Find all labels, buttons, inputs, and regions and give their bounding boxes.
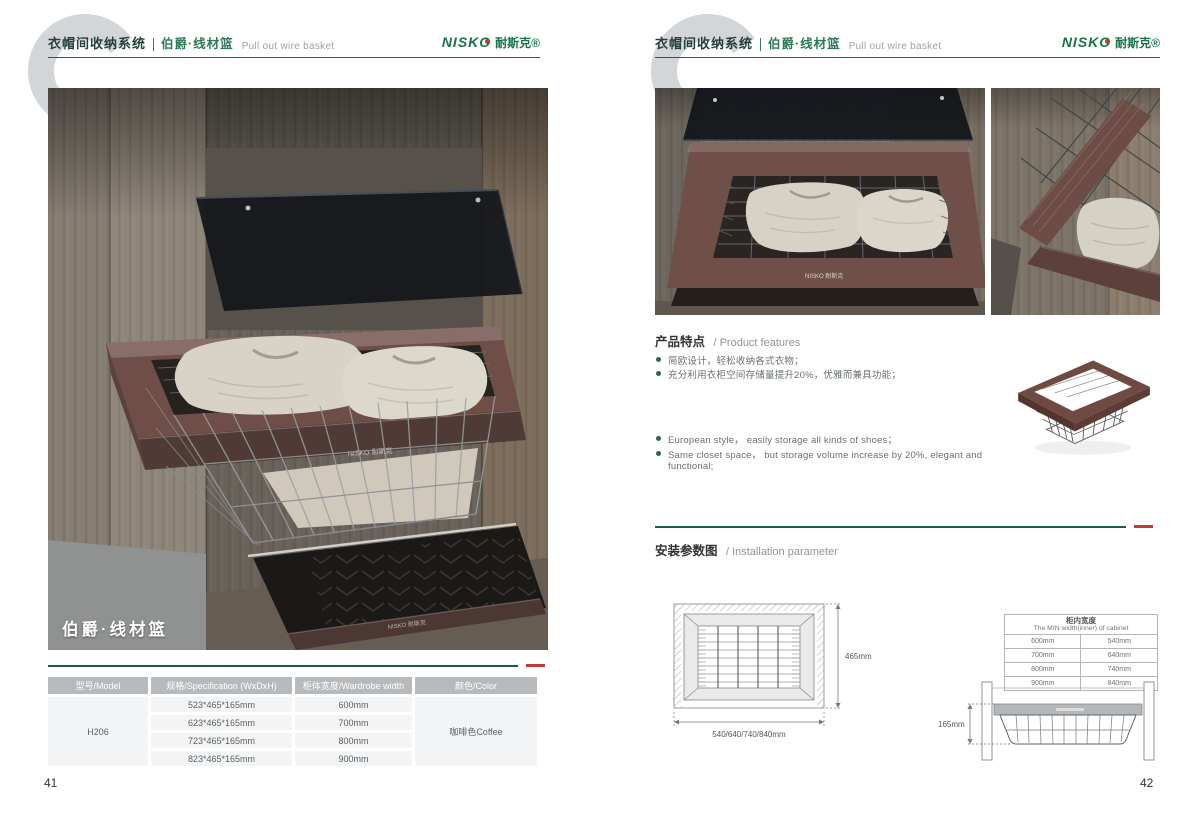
topview-width-label: 540/640/740/840mm bbox=[712, 730, 786, 739]
brand-logo: NISKO 耐斯克® bbox=[442, 34, 540, 51]
feature-text: 充分利用衣柜空间存储量提升20%，优雅而兼具功能； bbox=[668, 367, 901, 381]
cabinet-cell: 600mm bbox=[1005, 635, 1081, 649]
feature-bullet-zh-2: 充分利用衣柜空间存储量提升20%，优雅而兼具功能； bbox=[656, 367, 996, 381]
features-title-zh: 产品特点 bbox=[655, 335, 705, 349]
catalog-spread: 衣帽间收纳系统 伯爵·线材篮 Pull out wire basket NISK… bbox=[0, 0, 1200, 820]
spec-cell: 723*465*165mm bbox=[151, 733, 292, 748]
feature-bullet-zh-1: 简欧设计，轻松收纳各式衣物； bbox=[656, 353, 996, 367]
detail-photo-top: NISKO 耐斯克 bbox=[655, 88, 985, 315]
frontview-height-label: 165mm bbox=[938, 720, 965, 729]
cabinet-cell: 700mm bbox=[1005, 649, 1081, 663]
table-row: 800mm 740mm bbox=[1005, 663, 1158, 677]
page-header-right: 衣帽间收纳系统 伯爵·线材篮 Pull out wire basket NISK… bbox=[655, 14, 1160, 58]
table-row: 600mm 540mm bbox=[1005, 635, 1158, 649]
topview-diagram: 465mm 540/640/740/840mm bbox=[664, 596, 879, 756]
brand-logo-zh: 耐斯克® bbox=[495, 34, 540, 51]
bullet-dot-icon bbox=[656, 451, 661, 456]
installation-title: 安装参数图 / Installation parameter bbox=[655, 540, 838, 560]
page-number-right: 42 bbox=[1140, 776, 1153, 790]
features-title-en: / Product features bbox=[713, 337, 800, 349]
spec-cell: 823*465*165mm bbox=[151, 751, 292, 766]
brand-logo-en: NISKO bbox=[1062, 34, 1111, 50]
cabinet-cell: 800mm bbox=[1005, 663, 1081, 677]
bullet-dot-icon bbox=[656, 371, 661, 376]
header-series: 伯爵·线材篮 bbox=[768, 33, 841, 52]
wardrobe-basket-illustration: NISKO 耐斯克 bbox=[48, 88, 548, 650]
feature-text: European style， easily storage all kinds… bbox=[668, 432, 897, 446]
photo-caption: 伯爵·线材篮 bbox=[62, 616, 168, 640]
product-thumbnail bbox=[1006, 330, 1160, 464]
cabinet-cell: 540mm bbox=[1081, 635, 1158, 649]
page-header-left: 衣帽间收纳系统 伯爵·线材篮 Pull out wire basket NISK… bbox=[48, 14, 540, 58]
spec-table-header-model: 型号/Model bbox=[48, 677, 148, 694]
width-cell: 800mm bbox=[295, 733, 412, 748]
cabinet-table-title: 柜内宽度 The MIN width(inner) of cabinet bbox=[1005, 615, 1158, 635]
bullet-dot-icon bbox=[656, 357, 661, 362]
brand-logo-red-dot-icon bbox=[1105, 39, 1110, 44]
frontview-diagram: 165mm bbox=[936, 678, 1160, 766]
detail-photo-corner bbox=[991, 88, 1160, 315]
brand-logo: NISKO 耐斯克® bbox=[1062, 34, 1160, 51]
spec-cell: 523*465*165mm bbox=[151, 697, 292, 712]
page-number-left: 41 bbox=[44, 776, 57, 790]
installation-title-en: / Installation parameter bbox=[726, 546, 838, 558]
width-cell: 700mm bbox=[295, 715, 412, 730]
spec-table: 型号/Model 规格/Specification (WxDxH) 柜体宽度/W… bbox=[48, 677, 540, 766]
feature-text: 简欧设计，轻松收纳各式衣物； bbox=[668, 353, 804, 367]
divider-red-right bbox=[1134, 525, 1153, 528]
spec-table-header-width: 柜体宽度/Wardrobe width bbox=[295, 677, 412, 694]
header-series: 伯爵·线材篮 bbox=[161, 33, 234, 52]
brand-logo-red-dot-icon bbox=[485, 39, 490, 44]
feature-bullet-en-2: Same closet space， but storage volume in… bbox=[656, 447, 1001, 472]
header-category: 衣帽间收纳系统 bbox=[655, 33, 753, 52]
table-row: 700mm 640mm bbox=[1005, 649, 1158, 663]
main-product-photo: NISKO 耐斯克 bbox=[48, 88, 548, 650]
width-cell: 900mm bbox=[295, 751, 412, 766]
divider-red-left bbox=[526, 664, 545, 667]
spec-cell: 623*465*165mm bbox=[151, 715, 292, 730]
bullet-dot-icon bbox=[656, 436, 661, 441]
feature-text: Same closet space， but storage volume in… bbox=[668, 447, 1001, 472]
header-category: 衣帽间收纳系统 bbox=[48, 33, 146, 52]
width-cell: 600mm bbox=[295, 697, 412, 712]
cabinet-table-title-en: The MIN width(inner) of cabinet bbox=[1007, 625, 1155, 633]
brand-logo-en: NISKO bbox=[442, 34, 491, 50]
header-subtitle: Pull out wire basket bbox=[242, 41, 335, 52]
spec-table-header-color: 颜色/Color bbox=[415, 677, 537, 694]
installation-title-zh: 安装参数图 bbox=[655, 544, 718, 558]
spec-cell-color: 咖啡色Coffee bbox=[415, 697, 537, 766]
cabinet-table-title-zh: 柜内宽度 bbox=[1007, 616, 1155, 625]
divider-green-right bbox=[655, 526, 1126, 528]
header-subtitle: Pull out wire basket bbox=[849, 41, 942, 52]
spec-table-header-spec: 规格/Specification (WxDxH) bbox=[151, 677, 292, 694]
feature-bullet-en-1: European style， easily storage all kinds… bbox=[656, 432, 1001, 446]
rail-brand-print: NISKO 耐斯克 bbox=[805, 272, 843, 280]
topview-depth-label: 465mm bbox=[845, 652, 872, 661]
brand-logo-zh: 耐斯克® bbox=[1115, 34, 1160, 51]
spec-cell-model: H206 bbox=[48, 697, 148, 766]
divider-green-left bbox=[48, 665, 518, 667]
header-separator bbox=[760, 38, 761, 51]
features-title: 产品特点 / Product features bbox=[655, 331, 800, 351]
cabinet-cell: 640mm bbox=[1081, 649, 1158, 663]
header-separator bbox=[153, 38, 154, 51]
cabinet-cell: 740mm bbox=[1081, 663, 1158, 677]
